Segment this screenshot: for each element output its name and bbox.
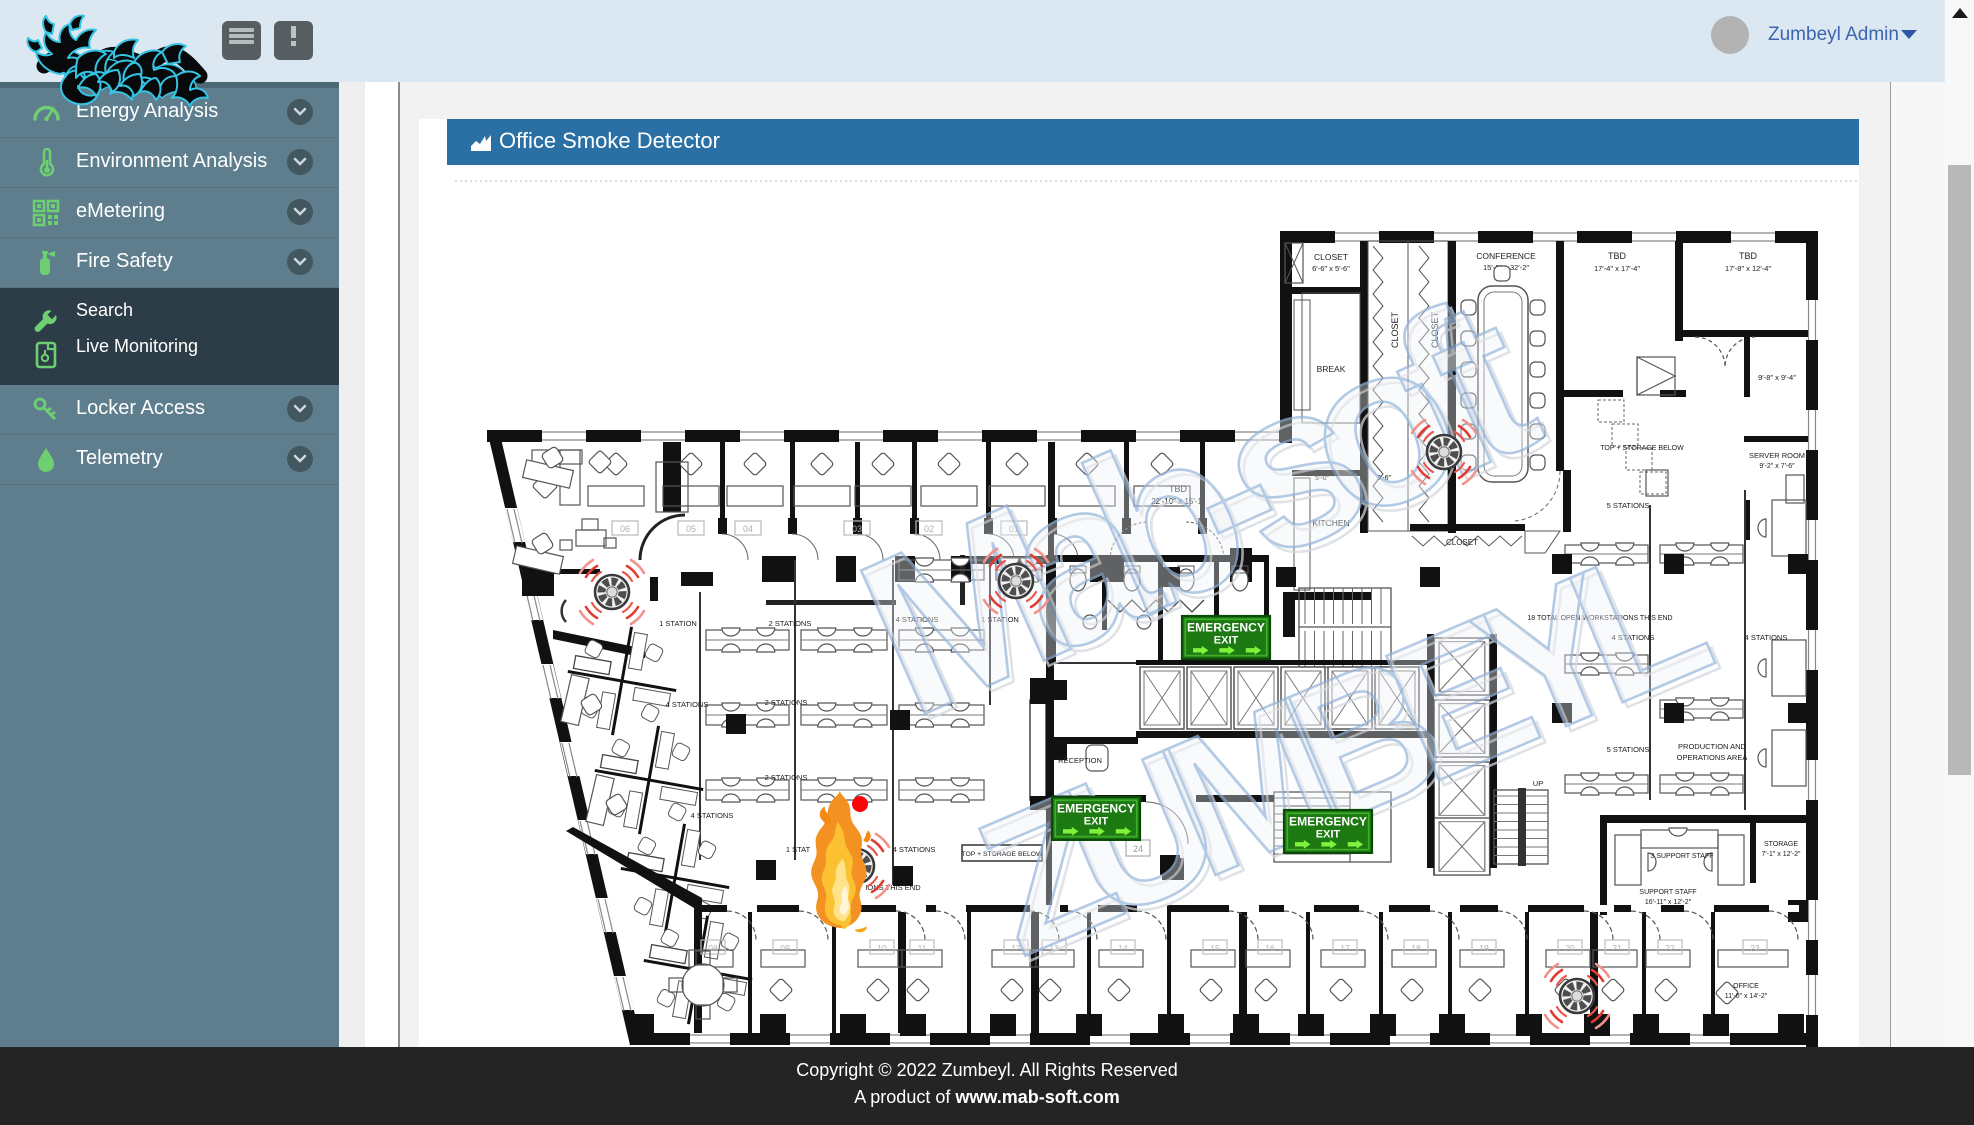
svg-text:23: 23	[1750, 943, 1760, 953]
svg-text:OFFICE: OFFICE	[1733, 983, 1759, 990]
svg-text:2 STATIONS: 2 STATIONS	[765, 773, 808, 782]
svg-text:STORAGE: STORAGE	[1764, 841, 1798, 848]
svg-text:4 STATIONS: 4 STATIONS	[691, 811, 734, 820]
svg-text:TBD: TBD	[1608, 251, 1627, 261]
svg-text:21: 21	[1612, 943, 1622, 953]
svg-text:1 STAT: 1 STAT	[786, 845, 811, 854]
svg-text:3 SUPPORT STAFF: 3 SUPPORT STAFF	[1650, 853, 1713, 860]
svg-text:17′-4″ x 17′-4″: 17′-4″ x 17′-4″	[1594, 264, 1640, 273]
svg-text:OPERATIONS AREA: OPERATIONS AREA	[1677, 753, 1748, 762]
svg-text:06: 06	[620, 524, 630, 534]
svg-text:16: 16	[1265, 943, 1275, 953]
svg-text:PRODUCTION AND: PRODUCTION AND	[1678, 742, 1747, 751]
svg-text:16′-11″ x 12′-2″: 16′-11″ x 12′-2″	[1645, 899, 1692, 906]
svg-text:17′-8″ x 12′-4″: 17′-8″ x 12′-4″	[1725, 264, 1771, 273]
svg-text:CLOSET: CLOSET	[1314, 252, 1348, 262]
svg-text:04: 04	[743, 524, 753, 534]
svg-text:CONFERENCE: CONFERENCE	[1476, 251, 1536, 261]
svg-text:18: 18	[1411, 943, 1421, 953]
svg-text:9′-8″ x 9′-4″: 9′-8″ x 9′-4″	[1758, 373, 1796, 382]
svg-text:SUPPORT STAFF: SUPPORT STAFF	[1639, 889, 1696, 896]
svg-text:9′-2″ x 7′-6″: 9′-2″ x 7′-6″	[1759, 463, 1795, 470]
svg-text:4 STATIONS: 4 STATIONS	[1745, 633, 1788, 642]
svg-text:09: 09	[780, 943, 790, 953]
svg-text:10: 10	[877, 943, 887, 953]
svg-text:11′-0″ x 14′-2″: 11′-0″ x 14′-2″	[1725, 993, 1768, 1000]
svg-text:19: 19	[1479, 943, 1489, 953]
svg-text:1 STATION: 1 STATION	[659, 619, 697, 628]
svg-text:22: 22	[1665, 943, 1675, 953]
svg-text:17: 17	[1340, 943, 1350, 953]
svg-text:TBD: TBD	[1739, 251, 1758, 261]
svg-text:5 STATIONS: 5 STATIONS	[1607, 501, 1650, 510]
svg-text:6′-6″ x 5′-6″: 6′-6″ x 5′-6″	[1312, 264, 1350, 273]
svg-text:20: 20	[1565, 943, 1575, 953]
svg-text:7′-1″ x 12′-2″: 7′-1″ x 12′-2″	[1761, 851, 1801, 858]
svg-text:15: 15	[1210, 943, 1220, 953]
svg-text:05: 05	[686, 524, 696, 534]
svg-text:4 STATIONS: 4 STATIONS	[666, 700, 709, 709]
svg-text:TOP + STORAGE BELOW: TOP + STORAGE BELOW	[1600, 445, 1684, 452]
svg-text:2 STATIONS: 2 STATIONS	[769, 619, 812, 628]
svg-text:4 STATIONS: 4 STATIONS	[893, 845, 936, 854]
svg-text:SERVER ROOM: SERVER ROOM	[1749, 451, 1805, 460]
svg-text:2 STATIONS: 2 STATIONS	[765, 698, 808, 707]
svg-text:11: 11	[918, 943, 927, 953]
